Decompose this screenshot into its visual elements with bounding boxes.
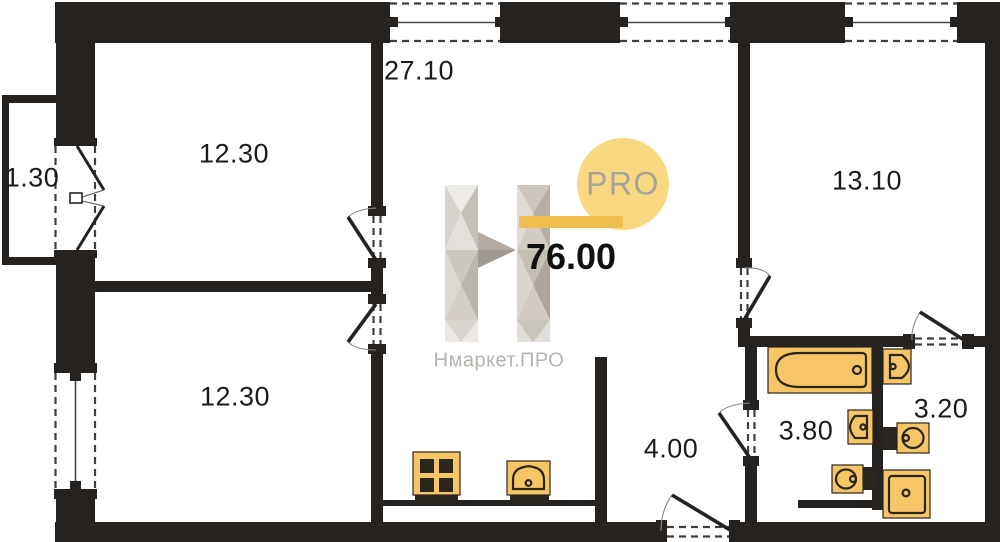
area-label-balcony: 1.30 <box>5 163 60 194</box>
accent-underline-bar <box>519 216 623 228</box>
brand-name-label: Нмаркет.ПРО <box>434 350 565 373</box>
door-bedroom-right <box>736 258 770 328</box>
door-wc <box>903 312 974 349</box>
wc-basin <box>883 349 911 384</box>
door-bathroom <box>719 400 759 466</box>
floor-plan: 27.10 12.30 1.30 12.30 13.10 4.00 3.80 3… <box>0 0 1000 542</box>
bathroom-basin <box>848 410 873 444</box>
wc-toilet <box>883 423 929 453</box>
total-area-label: 76.00 <box>526 236 616 278</box>
bathtub <box>768 347 872 393</box>
door-bedroom-bottom-left <box>348 294 386 354</box>
window-bedroom-right <box>842 4 961 42</box>
window-kitchen-left <box>387 4 506 42</box>
area-label-bedroom-top-left: 12.30 <box>199 139 269 170</box>
balcony-door <box>54 138 104 258</box>
area-label-bedroom-right: 13.10 <box>832 166 902 197</box>
door-entrance <box>656 495 740 539</box>
area-label-wc: 3.20 <box>914 394 969 425</box>
floor-plan-drawing <box>0 0 1000 542</box>
bathroom-toilet <box>832 465 877 493</box>
area-label-kitchen-living: 27.10 <box>384 56 454 87</box>
window-bedroom-bottom-left <box>54 363 97 499</box>
area-label-hallway: 4.00 <box>644 434 699 465</box>
area-label-bedroom-bottom-left: 12.30 <box>200 382 270 413</box>
pro-badge-text: PRO <box>586 166 660 203</box>
area-label-bathroom: 3.80 <box>779 416 834 447</box>
door-bedroom-top-left <box>348 206 386 268</box>
shower-tray <box>883 470 930 518</box>
stove <box>413 452 460 503</box>
kitchen-sink <box>507 461 550 503</box>
window-kitchen-right <box>617 4 736 42</box>
